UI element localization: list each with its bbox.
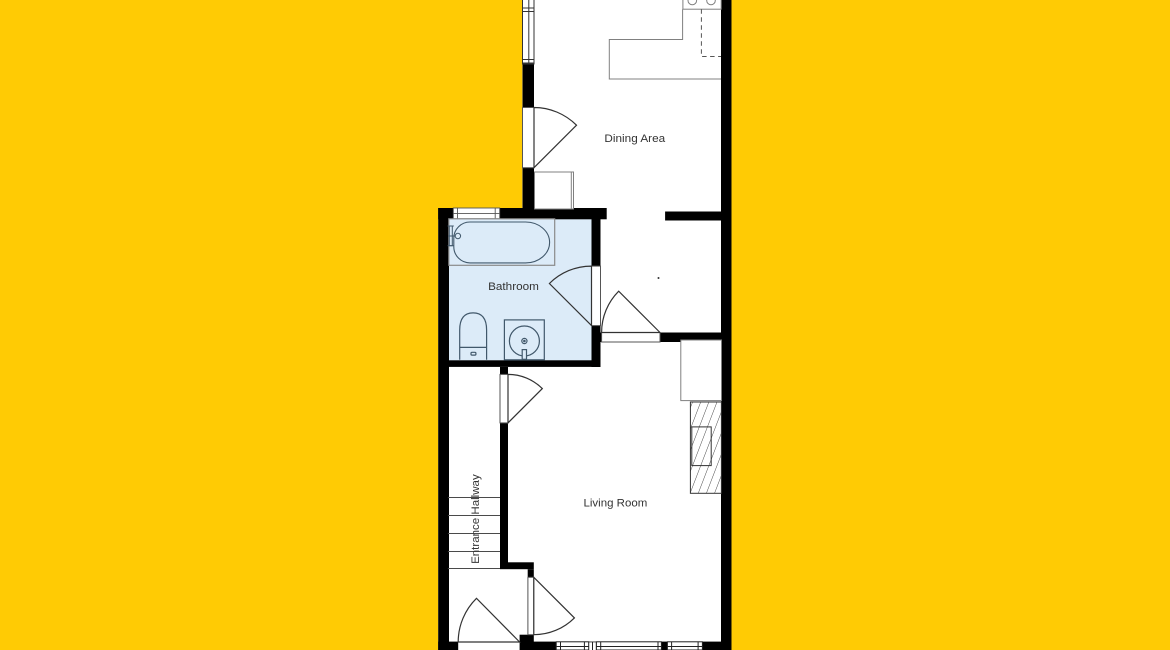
svg-text:Bathroom: Bathroom xyxy=(488,281,539,293)
svg-text:Dining Area: Dining Area xyxy=(604,133,666,145)
svg-text:Living Room: Living Room xyxy=(584,497,648,509)
svg-text:Entrance Hallway: Entrance Hallway xyxy=(470,474,482,564)
